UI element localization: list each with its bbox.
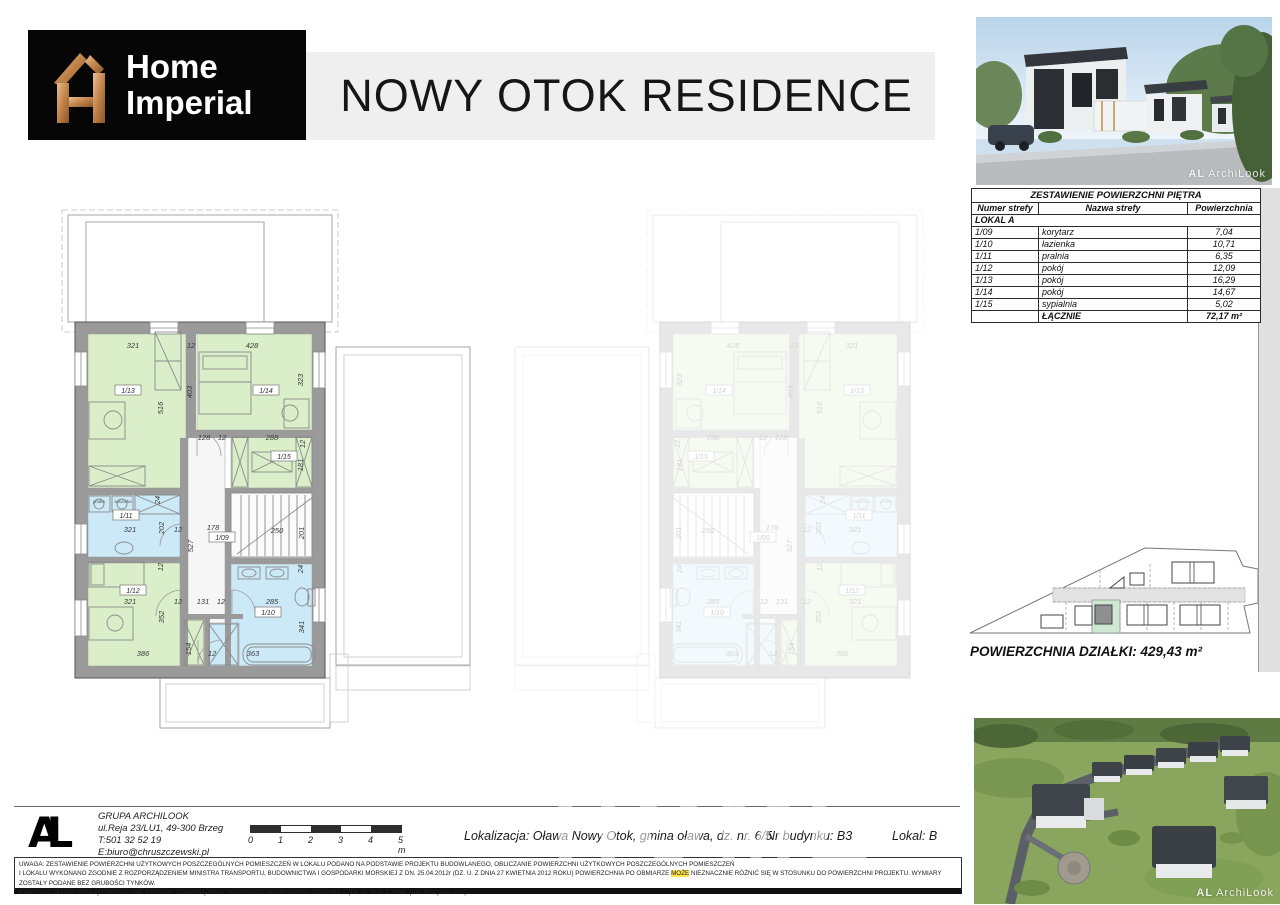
dimension-label: 12: [217, 597, 226, 606]
floor-area-table: ZESTAWIENIE POWIERZCHNI PIĘTRA Numer str…: [971, 188, 1261, 323]
disclaimer-line-2: I LOKALU WYKONANO ZGODNIE Z ROZPORZĄDZEN…: [19, 870, 942, 886]
logo-line-1: Home: [126, 49, 253, 85]
appliance-label: pralka: [879, 499, 892, 504]
dimension-label: 288: [706, 433, 720, 442]
floor-plan-right-unit: 1/131/141/151/111/091/121/10321124285164…: [515, 210, 923, 728]
unit-label: Lokal: B: [892, 829, 937, 843]
room-tag: 1/13: [121, 388, 135, 395]
company-info: GRUPA ARCHILOOK ul.Reja 23/LU1, 49-300 B…: [98, 811, 223, 859]
dimension-label: 516: [815, 401, 824, 414]
appliance-label: suszarka: [114, 499, 132, 504]
room-tag: 1/11: [852, 513, 865, 520]
legal-disclaimer: UWAGA: ZESTAWIENIE POWIERZCHNI UŻYTKOWYC…: [14, 857, 962, 894]
dimension-label: 12: [218, 433, 227, 442]
dimension-label: 321: [849, 525, 862, 534]
scale-tick: 0: [248, 835, 253, 845]
col-header-area: Powierzchnia: [1188, 203, 1261, 215]
area-table-row: 1/12pokój12,09: [972, 263, 1261, 275]
scale-bar: 012345 m: [250, 825, 410, 847]
aerial-render-photo: ALArchiLook: [974, 718, 1280, 904]
dimension-label: 12: [769, 649, 778, 658]
dimension-label: 154: [184, 643, 193, 656]
logo-line-2: Imperial: [126, 85, 253, 121]
plot-area-label: POWIERZCHNIA DZIAŁKI: 429,43 m²: [970, 644, 1202, 659]
area-table-row: 1/09korytarz7,04: [972, 227, 1261, 239]
appliance-label: suszarka: [853, 499, 871, 504]
dimension-label: 403: [786, 385, 795, 398]
dimension-label: 178: [207, 523, 220, 532]
dimension-label: 403: [185, 385, 194, 398]
dimension-label: 341: [297, 621, 306, 634]
dimension-label: 202: [814, 521, 823, 535]
room-tag: 1/10: [710, 610, 724, 617]
archilook-logo-mark: AL: [28, 809, 73, 853]
dimension-label: 321: [124, 525, 137, 534]
dimension-label: 386: [836, 649, 849, 658]
dimension-label: 178: [766, 523, 779, 532]
area-table-row: 1/10łazienka10,71: [972, 239, 1261, 251]
room-tag: 1/12: [126, 588, 140, 595]
area-table-row: 1/15sypialnia5,02: [972, 299, 1261, 311]
total-row-spacer: [972, 311, 1039, 323]
dimension-label: 12: [208, 649, 217, 658]
archilook-watermark: ALArchiLook: [1188, 168, 1266, 180]
building-number-label: Nr budynku: B3: [766, 829, 852, 843]
scale-tick: 5 m: [398, 835, 410, 855]
company-address: ul.Reja 23/LU1, 49-300 Brzeg: [98, 823, 223, 835]
right-margin-strip: [1258, 188, 1280, 672]
dimension-label: 12: [298, 439, 307, 448]
street-render-illustration: [976, 17, 1272, 185]
location-label: Lokalizacja: Oława Nowy Otok, gmina oław…: [464, 829, 772, 843]
dimension-label: 321: [127, 341, 140, 350]
dimension-label: 250: [701, 526, 715, 535]
disclaimer-line-1: UWAGA: ZESTAWIENIE POWIERZCHNI UŻYTKOWYC…: [19, 861, 735, 868]
dimension-label: 516: [156, 401, 165, 414]
dimension-label: 527: [785, 539, 794, 552]
scale-tick: 1: [278, 835, 283, 845]
dimension-label: 24: [675, 565, 684, 574]
room-tag: 1/09: [215, 535, 229, 542]
room-tag: 1/14: [712, 388, 726, 395]
room-1/12: [88, 563, 180, 666]
dimension-label: 12: [803, 525, 812, 534]
area-table-row: 1/14pokój14,67: [972, 287, 1261, 299]
dimension-label: 12: [174, 597, 183, 606]
table-title: ZESTAWIENIE POWIERZCHNI PIĘTRA: [972, 189, 1261, 203]
col-header-zone-name: Nazwa strefy: [1039, 203, 1188, 215]
room-1/13: [799, 334, 897, 488]
scale-tick: 3: [338, 835, 343, 845]
dimension-label: 202: [157, 521, 166, 535]
disclaimer-line-3: KARTA DO CELÓW POGLĄDOWYCH - NIE STANOWI…: [19, 889, 467, 896]
area-table-row: 1/11pralnia6,35: [972, 251, 1261, 263]
company-name: GRUPA ARCHILOOK: [98, 811, 223, 823]
room-tag: 1/15: [277, 454, 291, 461]
archilook-logo: AL: [28, 809, 84, 853]
dimension-label: 12: [803, 597, 812, 606]
scale-bar-segments: [250, 825, 402, 833]
dimension-label: 131: [197, 597, 210, 606]
dimension-label: 24: [818, 496, 827, 505]
dimension-label: 128: [198, 433, 211, 442]
dimension-label: 352: [157, 610, 166, 623]
total-value: 72,17 m²: [1188, 311, 1261, 323]
dimension-label: 321: [846, 341, 859, 350]
dimension-label: 128: [775, 433, 788, 442]
dimension-label: 323: [296, 373, 305, 386]
room-tag: 1/10: [261, 610, 275, 617]
page-title: NOWY OTOK RESIDENCE: [340, 70, 912, 122]
dimension-label: 181: [296, 459, 305, 472]
dimension-label: 321: [124, 597, 137, 606]
room-tag: 1/14: [259, 388, 273, 395]
dimension-label: 12: [673, 439, 682, 448]
dimension-label: 341: [674, 621, 683, 634]
dimension-label: 323: [675, 373, 684, 386]
dimension-label: 131: [776, 597, 789, 606]
highlighted-word: MOŻE: [671, 870, 689, 877]
home-imperial-wordmark: Home Imperial: [126, 49, 253, 120]
dimension-label: 250: [270, 526, 284, 535]
dimension-label: 24: [296, 565, 305, 574]
dimension-label: 154: [787, 643, 796, 656]
dimension-label: 12: [156, 562, 165, 571]
room-tag: 1/09: [756, 535, 770, 542]
dimension-label: 12: [174, 525, 183, 534]
dimension-label: 181: [675, 459, 684, 472]
total-label: ŁĄCZNIE: [1039, 311, 1188, 323]
dimension-label: 386: [137, 649, 150, 658]
dimension-label: 363: [247, 649, 260, 658]
street-render-photo: ALArchiLook: [976, 17, 1272, 185]
scale-tick: 2: [308, 835, 313, 845]
room-tag: 1/15: [694, 454, 708, 461]
dimension-label: 12: [760, 597, 769, 606]
dimension-label: 12: [815, 562, 824, 571]
room-1/13: [88, 334, 186, 488]
dimension-label: 288: [265, 433, 279, 442]
site-plan: [970, 548, 1258, 633]
room-tag: 1/13: [850, 388, 864, 395]
dimension-label: 201: [297, 527, 306, 541]
dimension-label: 321: [849, 597, 862, 606]
archilook-watermark: ALArchiLook: [1196, 887, 1274, 899]
footer-bar: AL GRUPA ARCHILOOK ul.Reja 23/LU1, 49-30…: [14, 806, 960, 857]
dimension-label: 363: [726, 649, 739, 658]
dimension-label: 24: [153, 496, 162, 505]
dimension-label: 428: [246, 341, 259, 350]
dimension-label: 12: [759, 433, 768, 442]
aerial-render-illustration: [974, 718, 1280, 904]
col-header-zone-number: Numer strefy: [972, 203, 1039, 215]
dimension-label: 285: [706, 597, 720, 606]
scale-tick: 4: [368, 835, 373, 845]
table-group-label: LOKAL A: [972, 215, 1261, 227]
dimension-label: 428: [727, 341, 740, 350]
appliance-label: pralka: [92, 499, 105, 504]
dimension-label: 352: [814, 610, 823, 623]
dimension-label: 12: [187, 341, 196, 350]
dimension-label: 527: [186, 539, 195, 552]
current-building-marker: [1095, 605, 1112, 624]
room-tag: 1/11: [119, 513, 132, 520]
area-table-row: 1/13pokój16,29: [972, 275, 1261, 287]
dimension-label: 201: [674, 527, 683, 541]
floor-plan-left-unit: 1/131/141/151/111/091/121/10321124285164…: [62, 210, 470, 728]
home-imperial-logo: Home Imperial: [28, 30, 306, 140]
property-sheet-page: 1/131/141/151/111/091/121/10321124285164…: [0, 0, 1280, 905]
company-phone: T:501 32 52 19: [98, 835, 223, 847]
dimension-label: 12: [790, 341, 799, 350]
home-imperial-house-icon: [52, 45, 110, 125]
dimension-label: 285: [265, 597, 279, 606]
room-tag: 1/12: [845, 588, 859, 595]
